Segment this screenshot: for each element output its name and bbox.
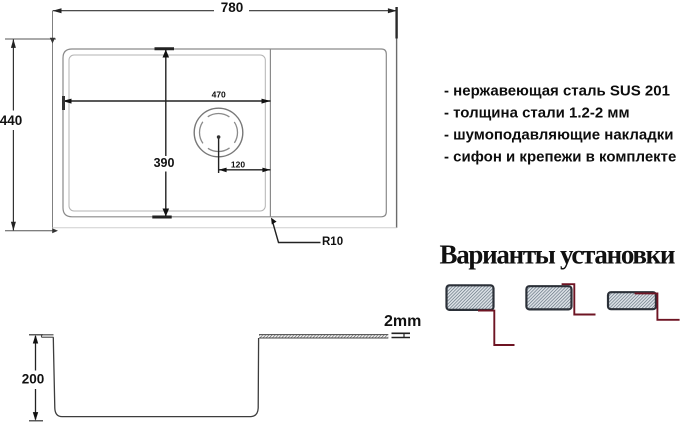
svg-text:200: 200: [22, 372, 45, 387]
svg-text:120: 120: [231, 160, 245, 170]
svg-text:- сифон и крепежи в комплекте: - сифон и крепежи в комплекте: [444, 149, 676, 166]
svg-text:780: 780: [221, 0, 244, 15]
svg-text:- нержавеющая сталь SUS 201: - нержавеющая сталь SUS 201: [444, 82, 670, 99]
svg-text:R10: R10: [322, 236, 343, 248]
svg-text:- толщина стали 1.2-2 мм: - толщина стали 1.2-2 мм: [444, 105, 630, 122]
svg-text:390: 390: [154, 156, 175, 170]
svg-text:Варианты установки: Варианты установки: [440, 240, 675, 270]
svg-text:- шумоподавляющие накладки: - шумоподавляющие накладки: [444, 126, 673, 143]
svg-text:2mm: 2mm: [384, 313, 421, 330]
svg-text:470: 470: [212, 90, 226, 100]
svg-text:440: 440: [0, 113, 22, 128]
